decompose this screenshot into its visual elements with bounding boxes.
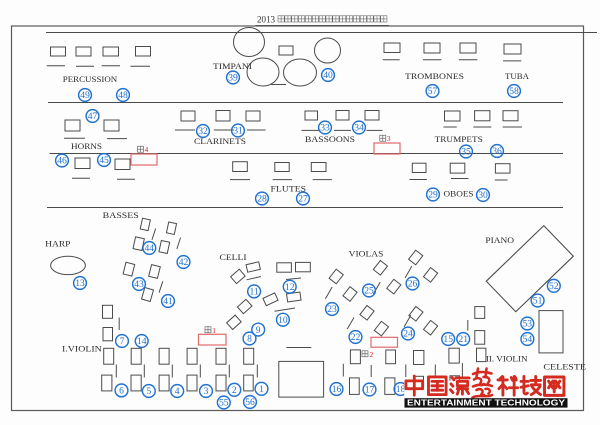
svg-text:4: 4 [145, 145, 149, 154]
svg-text:36: 36 [492, 146, 502, 157]
svg-text:29: 29 [428, 190, 438, 201]
svg-text:BASSES: BASSES [103, 210, 139, 220]
svg-text:BASSOONS: BASSOONS [305, 134, 355, 144]
svg-text:40: 40 [323, 70, 333, 81]
svg-text:41: 41 [163, 296, 173, 307]
svg-text:HARP: HARP [45, 238, 70, 248]
svg-text:TROMBONES: TROMBONES [405, 71, 464, 81]
svg-text:24: 24 [403, 329, 413, 340]
svg-text:58: 58 [509, 86, 519, 97]
svg-text:1: 1 [259, 384, 264, 395]
svg-text:22: 22 [351, 332, 361, 343]
svg-text:9: 9 [256, 325, 261, 336]
svg-text:7: 7 [120, 336, 125, 347]
svg-text:44: 44 [145, 243, 155, 254]
svg-text:33: 33 [320, 123, 330, 134]
svg-text:6: 6 [119, 386, 124, 397]
svg-text:55: 55 [219, 398, 229, 409]
svg-text:51: 51 [533, 296, 543, 307]
svg-text:26: 26 [408, 279, 418, 290]
svg-text:21: 21 [458, 334, 468, 345]
svg-text:16: 16 [332, 384, 342, 395]
svg-text:PERCUSSION: PERCUSSION [63, 74, 118, 84]
svg-text:CELESTE: CELESTE [543, 361, 586, 371]
svg-text:34: 34 [354, 123, 364, 134]
svg-text:CELLI: CELLI [220, 252, 247, 262]
svg-text:TRUMPETS: TRUMPETS [435, 134, 483, 144]
svg-text:18: 18 [396, 384, 406, 395]
svg-text:11: 11 [249, 287, 258, 298]
svg-text:3: 3 [204, 386, 209, 397]
svg-text:II. VIOLIN: II. VIOLIN [486, 353, 528, 363]
svg-text:30: 30 [478, 190, 488, 201]
svg-text:5: 5 [146, 386, 151, 397]
svg-text:CLARINETS: CLARINETS [194, 136, 246, 146]
svg-text:57: 57 [428, 86, 438, 97]
svg-text:35: 35 [461, 147, 471, 158]
svg-text:46: 46 [57, 156, 67, 167]
svg-text:13: 13 [75, 278, 85, 289]
svg-text:14: 14 [137, 336, 147, 347]
svg-text:53: 53 [523, 319, 533, 330]
svg-text:8: 8 [247, 334, 252, 345]
svg-text:25: 25 [364, 286, 374, 297]
svg-text:17: 17 [365, 385, 375, 396]
svg-text:VIOLAS: VIOLAS [349, 249, 384, 259]
svg-text:56: 56 [245, 397, 255, 408]
svg-text:52: 52 [549, 281, 559, 292]
svg-text:45: 45 [99, 155, 109, 166]
svg-text:TIMPANI: TIMPANI [213, 61, 252, 71]
svg-text:2: 2 [232, 385, 237, 396]
svg-text:28: 28 [257, 194, 267, 205]
svg-text:42: 42 [179, 257, 189, 268]
svg-text:OBOES: OBOES [444, 189, 474, 199]
svg-text:TUBA: TUBA [505, 71, 530, 81]
svg-text:HORNS: HORNS [71, 141, 102, 151]
svg-text:15: 15 [443, 334, 453, 345]
svg-text:48: 48 [118, 90, 128, 101]
svg-text:2013: 2013 [257, 15, 276, 25]
svg-text:PIANO: PIANO [485, 235, 514, 245]
svg-text:ENTERTAINMENT TECHNOLOGY: ENTERTAINMENT TECHNOLOGY [407, 399, 566, 408]
svg-text:27: 27 [298, 194, 308, 205]
svg-text:47: 47 [88, 111, 98, 122]
svg-text:54: 54 [523, 334, 533, 345]
svg-text:10: 10 [278, 315, 288, 326]
svg-text:I.VIOLIN: I.VIOLIN [62, 343, 102, 353]
svg-text:43: 43 [134, 279, 144, 290]
svg-text:39: 39 [228, 73, 238, 84]
svg-text:23: 23 [327, 304, 337, 315]
svg-text:4: 4 [175, 386, 180, 397]
svg-text:49: 49 [80, 90, 90, 101]
svg-text:12: 12 [285, 282, 295, 293]
svg-text:3: 3 [387, 134, 391, 143]
svg-text:2: 2 [370, 350, 374, 359]
svg-text:1: 1 [212, 326, 216, 335]
